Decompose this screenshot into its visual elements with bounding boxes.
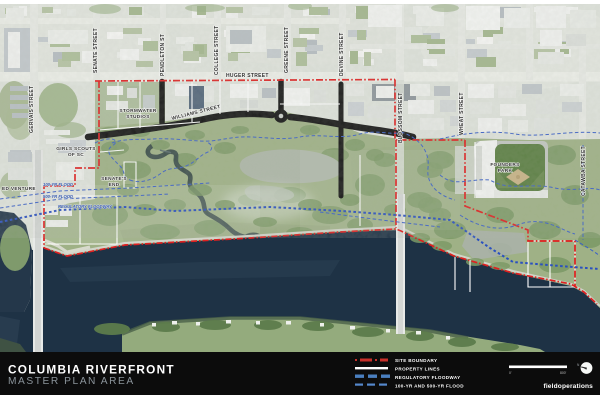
svg-text:REGULATORY FLOODWAY: REGULATORY FLOODWAY (395, 375, 461, 380)
svg-text:100-YR AND 500-YR FLOOD: 100-YR AND 500-YR FLOOD (395, 384, 464, 389)
svg-text:SITE BOUNDARY: SITE BOUNDARY (395, 358, 437, 363)
svg-text:COLUMBIA RIVERFRONT: COLUMBIA RIVERFRONT (8, 363, 175, 377)
svg-text:fieldoperations: fieldoperations (543, 383, 593, 390)
svg-text:PROPERTY LINES: PROPERTY LINES (395, 367, 440, 372)
svg-text:800': 800' (560, 371, 567, 375)
svg-text:MASTER PLAN AREA: MASTER PLAN AREA (8, 376, 135, 387)
svg-text:0': 0' (509, 371, 512, 375)
